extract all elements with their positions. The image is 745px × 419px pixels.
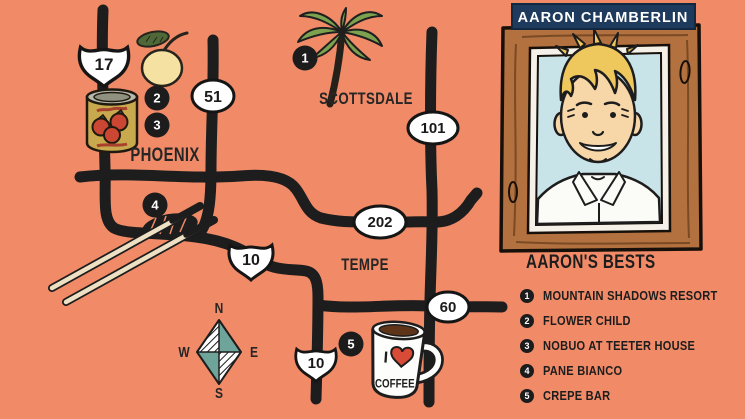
- marker-5: 5: [339, 332, 364, 357]
- list-item-4: 4 PANE BIANCO: [520, 358, 745, 383]
- name-banner: AARON CHAMBERLIN: [512, 4, 695, 29]
- svg-text:3: 3: [153, 118, 160, 133]
- svg-text:101: 101: [420, 120, 445, 137]
- list-bullet-5: 5: [520, 389, 534, 403]
- list-label-2: FLOWER CHILD: [543, 313, 631, 328]
- shield-i10-upper: 10: [229, 245, 273, 280]
- label-tempe: TEMPE: [341, 256, 389, 275]
- eye: [610, 112, 616, 118]
- svg-text:51: 51: [204, 89, 222, 106]
- marker-3: 3: [145, 113, 170, 138]
- tomato-can-icon: [87, 90, 137, 153]
- shield-loop101: 101: [408, 112, 458, 144]
- list-label-4: PANE BIANCO: [543, 363, 622, 378]
- mug-word2: COFFEE: [375, 378, 415, 391]
- illustrated-city-map: N S W E I COFFEE 17 10 10 51: [0, 0, 745, 419]
- shield-loop202: 202: [354, 206, 406, 238]
- lemon-icon: [136, 29, 187, 86]
- compass-e: E: [250, 344, 258, 361]
- list-bullet-1: 1: [520, 289, 534, 303]
- svg-text:1: 1: [301, 51, 308, 66]
- bests-title: AARON'S BESTS: [526, 252, 701, 274]
- chopsticks-icon: [52, 206, 214, 302]
- list-label-1: MOUNTAIN SHADOWS RESORT: [543, 288, 717, 303]
- eye: [582, 112, 588, 118]
- svg-text:2: 2: [153, 91, 160, 106]
- list-bullet-4: 4: [520, 364, 534, 378]
- banner-name-text: AARON CHAMBERLIN: [518, 10, 689, 26]
- marker-2: 2: [145, 86, 170, 111]
- compass-w: W: [178, 344, 189, 361]
- marker-1: 1: [293, 46, 318, 71]
- shield-i10-lower: 10: [296, 349, 336, 381]
- road-loop202: [80, 175, 477, 222]
- svg-text:5: 5: [347, 337, 354, 352]
- compass-s: S: [215, 385, 223, 402]
- shield-us60: 60: [427, 292, 469, 322]
- svg-text:10: 10: [308, 355, 325, 372]
- list-item-5: 5 CREPE BAR: [520, 383, 745, 408]
- svg-text:4: 4: [151, 198, 159, 213]
- svg-text:10: 10: [242, 252, 260, 269]
- shield-i17: 17: [79, 47, 128, 86]
- bests-list: 1 MOUNTAIN SHADOWS RESORT 2 FLOWER CHILD…: [520, 283, 745, 408]
- portrait: AARON CHAMBERLIN: [501, 4, 701, 251]
- marker-4: 4: [143, 193, 168, 218]
- label-phoenix: PHOENIX: [130, 144, 200, 165]
- compass-n: N: [215, 300, 224, 317]
- shield-sr51: 51: [192, 80, 234, 112]
- list-label-5: CREPE BAR: [543, 388, 610, 403]
- list-label-3: NOBUO AT TEETER HOUSE: [543, 338, 695, 353]
- list-item-3: 3 NOBUO AT TEETER HOUSE: [520, 333, 745, 358]
- list-bullet-3: 3: [520, 339, 534, 353]
- svg-text:202: 202: [367, 214, 392, 231]
- bests-panel: AARON'S BESTS 1 MOUNTAIN SHADOWS RESORT …: [520, 252, 745, 408]
- list-item-1: 1 MOUNTAIN SHADOWS RESORT: [520, 283, 745, 308]
- compass-rose-icon: N S W E: [178, 300, 258, 402]
- road-us60: [318, 305, 502, 307]
- list-item-2: 2 FLOWER CHILD: [520, 308, 745, 333]
- svg-text:60: 60: [440, 299, 457, 316]
- label-scottsdale: SCOTTSDALE: [319, 90, 413, 109]
- list-bullet-2: 2: [520, 314, 534, 328]
- svg-text:17: 17: [95, 55, 114, 74]
